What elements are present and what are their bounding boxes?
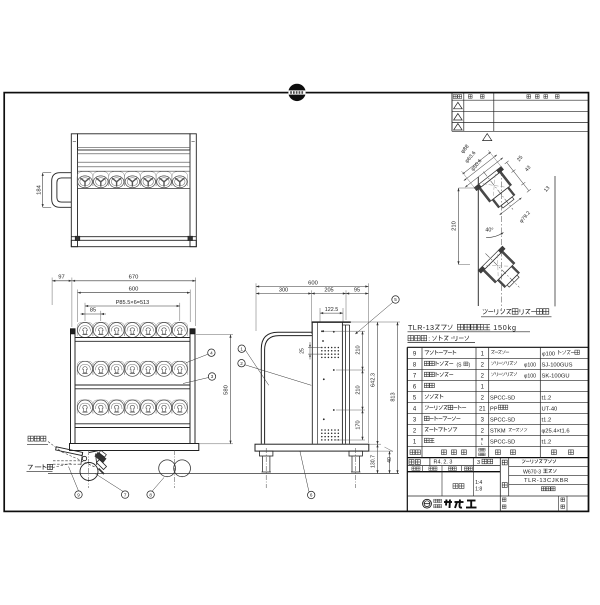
svg-text:40: 40	[387, 457, 393, 463]
svg-text:8: 8	[149, 492, 152, 497]
svg-text:2: 2	[240, 361, 243, 366]
svg-text:122.5: 122.5	[325, 307, 339, 313]
svg-text:φ100: φ100	[542, 351, 555, 357]
svg-text:210: 210	[452, 221, 458, 231]
svg-text:4: 4	[210, 350, 213, 355]
svg-text:130.7: 130.7	[371, 455, 377, 468]
svg-text:SPCC-SD: SPCC-SD	[490, 439, 515, 445]
svg-text:SJ-100GUS: SJ-100GUS	[542, 362, 573, 368]
svg-text:21: 21	[479, 407, 486, 413]
svg-text:210: 210	[355, 345, 361, 354]
svg-text:5: 5	[394, 297, 397, 302]
svg-text:580: 580	[224, 385, 230, 395]
svg-text:3: 3	[211, 374, 214, 379]
svg-text:95: 95	[354, 287, 360, 293]
svg-text:P85.5×6=513: P85.5×6=513	[116, 300, 150, 306]
svg-text:SPCC-SD: SPCC-SD	[490, 395, 515, 401]
svg-text:3: 3	[477, 460, 480, 466]
svg-text:φ25.4×t1.6: φ25.4×t1.6	[542, 428, 570, 434]
svg-text:TLR-13CJKBR: TLR-13CJKBR	[524, 478, 569, 484]
svg-text:R4. 2. 3: R4. 2. 3	[434, 460, 453, 466]
svg-text:300: 300	[279, 287, 288, 293]
svg-text:SPCC-SD: SPCC-SD	[490, 417, 515, 423]
svg-text:1:4: 1:4	[475, 480, 482, 486]
svg-text:85: 85	[90, 308, 96, 314]
svg-text:7: 7	[124, 492, 127, 497]
svg-text:40°: 40°	[485, 228, 493, 234]
svg-text:φ100: φ100	[524, 373, 536, 379]
svg-text:642.3: 642.3	[371, 373, 377, 387]
svg-text:813: 813	[390, 392, 396, 401]
svg-text:W670: W670	[523, 469, 537, 475]
svg-text:600: 600	[308, 280, 318, 286]
svg-text:205: 205	[324, 287, 333, 293]
svg-text:150kg: 150kg	[493, 323, 517, 332]
svg-text:1: 1	[240, 346, 243, 351]
svg-text:210: 210	[355, 385, 361, 394]
svg-text::: :	[428, 336, 430, 343]
svg-text:·3: ·3	[537, 469, 542, 475]
svg-text:(S: (S	[457, 363, 463, 369]
svg-text:UT-40: UT-40	[542, 406, 558, 412]
svg-text:6: 6	[310, 493, 313, 498]
svg-text:t1.2: t1.2	[542, 439, 552, 445]
svg-text:L: L	[481, 442, 483, 446]
svg-text:9: 9	[77, 492, 80, 497]
svg-text:184: 184	[36, 184, 42, 194]
svg-text:600: 600	[129, 287, 139, 293]
svg-text:SK-100GU: SK-100GU	[542, 373, 570, 379]
svg-text:670: 670	[129, 275, 139, 281]
svg-text:170: 170	[355, 420, 361, 429]
svg-text:t1.2: t1.2	[542, 417, 552, 423]
svg-text:97: 97	[58, 275, 64, 281]
svg-text:t1.2: t1.2	[542, 395, 552, 401]
svg-text:STKM: STKM	[490, 428, 506, 434]
svg-text:PP: PP	[490, 406, 498, 412]
svg-text:25: 25	[300, 348, 306, 354]
svg-text:φ100: φ100	[524, 362, 536, 368]
svg-text:1:8: 1:8	[475, 487, 482, 493]
svg-text:TLR-13: TLR-13	[408, 323, 434, 332]
